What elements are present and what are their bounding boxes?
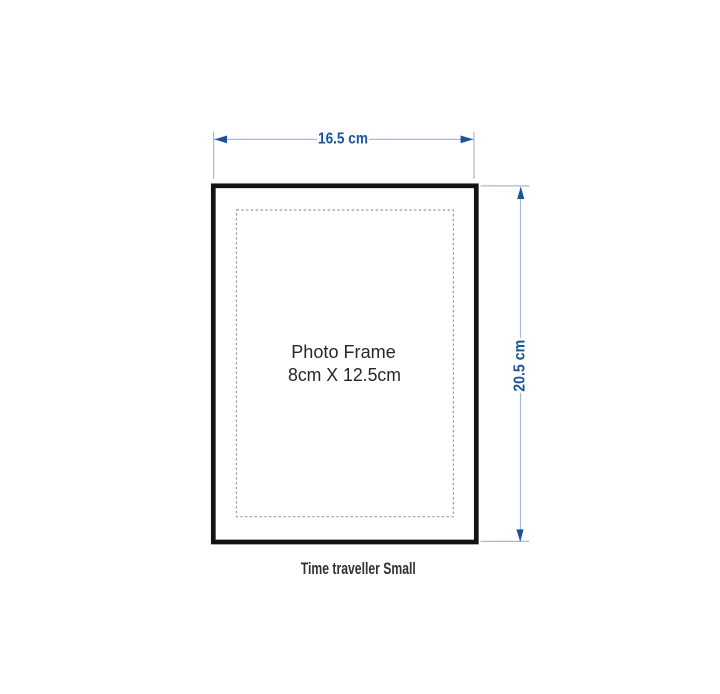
- svg-text:16.5 cm: 16.5 cm: [318, 131, 368, 148]
- svg-text:Time traveller Small: Time traveller Small: [301, 559, 416, 578]
- svg-text:20.5 cm: 20.5 cm: [512, 340, 529, 392]
- svg-text:8cm X 12.5cm: 8cm X 12.5cm: [288, 365, 401, 385]
- svg-text:Photo Frame: Photo Frame: [291, 342, 396, 362]
